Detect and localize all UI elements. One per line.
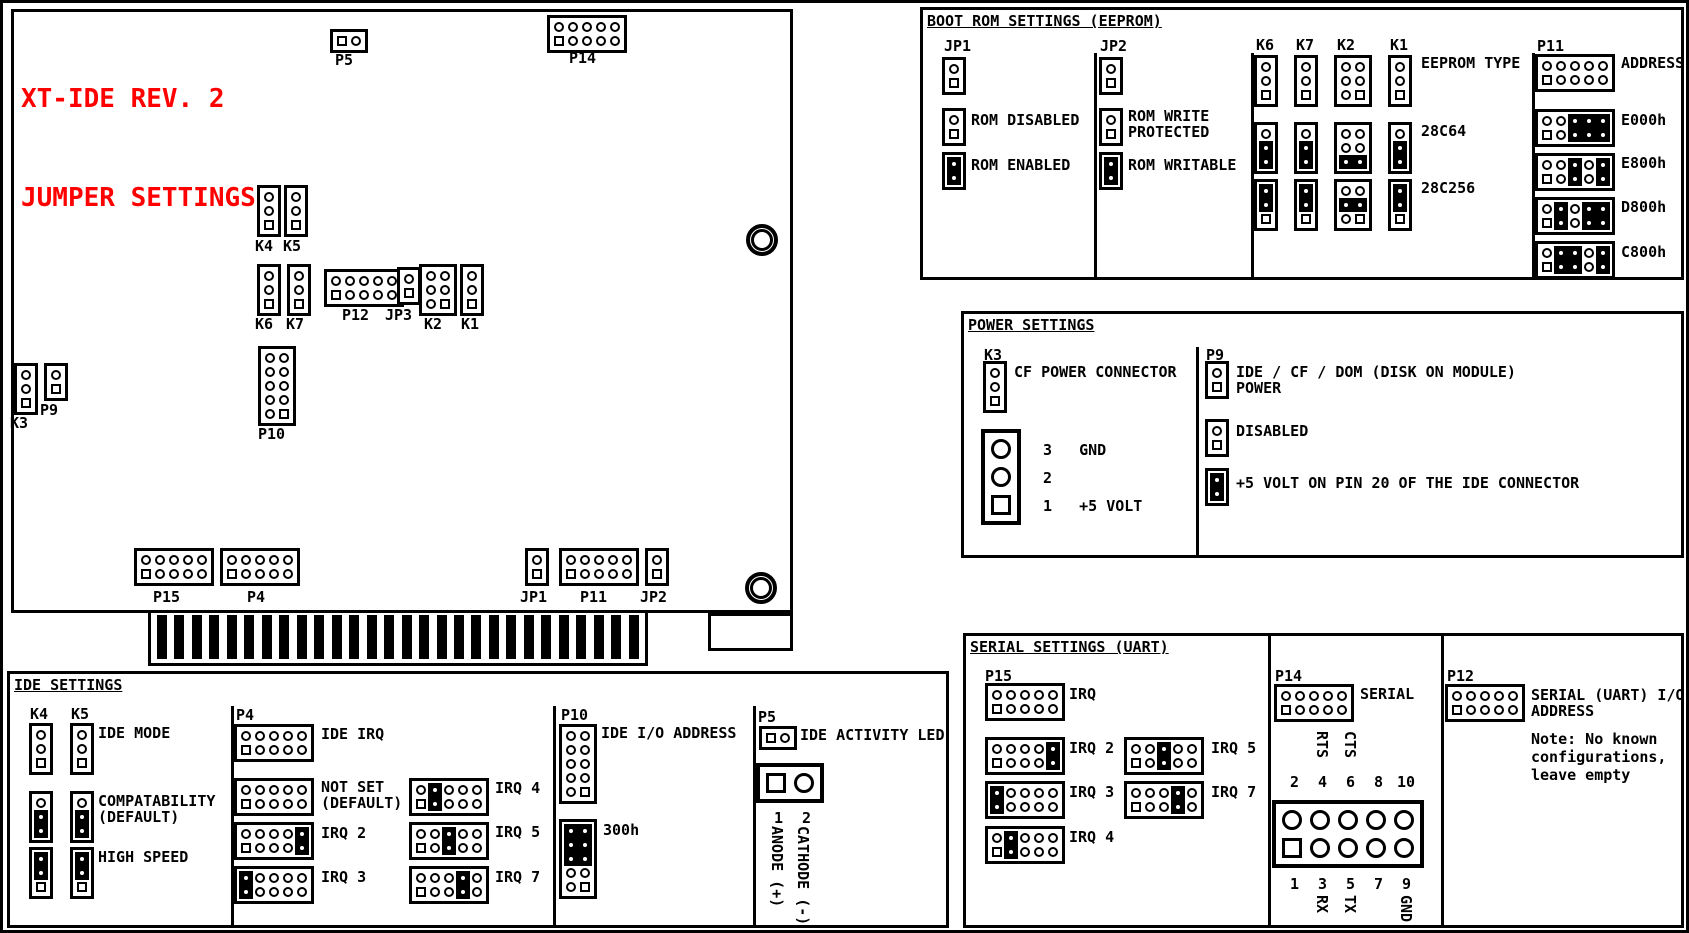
pin-dot	[433, 788, 437, 792]
label-pin2: 2	[1043, 471, 1052, 485]
pin-dot	[1304, 160, 1308, 164]
pin-round	[1034, 788, 1044, 798]
label-pin2: 2	[1290, 775, 1299, 789]
label-note-1: Note: No known	[1531, 732, 1657, 746]
pin-round	[1006, 802, 1016, 812]
hdr-p15-irq7	[1124, 781, 1204, 819]
pin-round	[430, 829, 440, 839]
pin-dot	[461, 890, 465, 894]
pin-dot	[1215, 492, 1219, 496]
pin-round	[554, 22, 564, 32]
pin-round	[458, 785, 468, 795]
pin-round	[440, 271, 450, 281]
pin-round	[622, 569, 632, 579]
pin-dot	[1559, 207, 1563, 211]
pin-round	[416, 785, 426, 795]
pin-1-square	[227, 569, 237, 579]
pin-round	[1355, 186, 1365, 196]
label-k5: K5	[71, 707, 89, 721]
hdr-k1-pins	[1388, 55, 1412, 107]
pin-1-square	[1542, 174, 1552, 184]
pin-round	[1542, 116, 1552, 126]
pin-dot	[1162, 761, 1166, 765]
mounting-hole	[745, 572, 777, 604]
pin-round	[155, 555, 165, 565]
hdr-jp1	[525, 548, 549, 586]
pin-1-square	[992, 847, 1002, 857]
label-ide-io-address: IDE I/O ADDRESS	[601, 726, 736, 740]
pin-dot	[1051, 747, 1055, 751]
label-p14: P14	[569, 51, 596, 65]
pin-1-square	[766, 733, 776, 743]
pin-round	[255, 569, 265, 579]
label-pin4: 4	[1318, 775, 1327, 789]
pin-dot	[569, 857, 573, 861]
pin-1-square	[1212, 382, 1222, 392]
pin-dot	[1304, 203, 1308, 207]
pin-1-square	[1542, 262, 1552, 272]
label-ide-cf-dom: IDE / CF / DOM (DISK ON MODULE)	[1236, 365, 1516, 379]
hdr-p9-pins	[1205, 361, 1229, 399]
pin-round	[1295, 705, 1305, 715]
pin-dot	[447, 846, 451, 850]
pin-dot	[1587, 207, 1591, 211]
label-p11: P11	[1537, 39, 1564, 53]
pin-round	[269, 799, 279, 809]
pin-round	[279, 367, 289, 377]
pin-round	[1570, 75, 1580, 85]
pin-round	[1301, 129, 1311, 139]
pin-dot	[1398, 189, 1402, 193]
hdr-p4-irq5	[409, 822, 489, 860]
pin-round	[1261, 76, 1271, 86]
pin-round	[241, 731, 251, 741]
hdr-p4-irq3	[234, 866, 314, 904]
pin-round	[1020, 788, 1030, 798]
pin-round	[580, 569, 590, 579]
pin-round	[566, 745, 576, 755]
pin-round	[1020, 744, 1030, 754]
pin-round	[283, 887, 293, 897]
label-k1: K1	[1390, 38, 1408, 52]
pin-round	[1508, 705, 1518, 715]
pin-round	[283, 569, 293, 579]
label-cf-power-connector: CF POWER CONNECTOR	[1014, 365, 1177, 379]
hdr-k6	[257, 264, 281, 316]
pin-round	[1301, 76, 1311, 86]
pin-round	[1323, 705, 1333, 715]
pin-1-square	[331, 290, 341, 300]
pin-round	[1048, 704, 1058, 714]
hdr-p10	[258, 346, 296, 426]
label-disabled: DISABLED	[1236, 424, 1308, 438]
pin-dot	[244, 890, 248, 894]
pin-round	[472, 843, 482, 853]
pin-round	[1187, 788, 1197, 798]
pin-round	[404, 274, 414, 284]
label-anode: ANODE (+)	[770, 826, 784, 907]
label-p4: P4	[247, 590, 265, 604]
pin-round	[610, 36, 620, 46]
pin-round	[1034, 744, 1044, 754]
pin-round	[1309, 705, 1319, 715]
pin-round	[1355, 143, 1365, 153]
pin-round	[1556, 130, 1566, 140]
hdr-p11-e800h	[1535, 153, 1615, 191]
pin-dot	[1264, 160, 1268, 164]
pin-round	[36, 730, 46, 740]
hdr-serial-connector	[1272, 800, 1424, 868]
pin-1-square	[77, 758, 87, 768]
label-k2: K2	[424, 317, 442, 331]
pin-round	[297, 887, 307, 897]
pin-round	[990, 368, 1000, 378]
label-jp2: JP2	[1100, 39, 1127, 53]
pin-round	[1310, 838, 1330, 858]
pin-1-square	[1301, 90, 1311, 100]
pin-round	[283, 873, 293, 883]
pin-round	[472, 829, 482, 839]
pin-dot	[1601, 163, 1605, 167]
hdr-k1-28c64	[1388, 122, 1412, 174]
pin-round	[283, 555, 293, 565]
pin-round	[1366, 810, 1386, 830]
label-cathode: CATHODE (-)	[796, 826, 810, 925]
hdr-k7	[287, 264, 311, 316]
pin-round	[1295, 691, 1305, 701]
pin-round	[472, 799, 482, 809]
label-28c256: 28C256	[1421, 181, 1475, 195]
pin-round	[227, 555, 237, 565]
pin-dot	[1344, 203, 1348, 207]
pin-round	[1131, 744, 1141, 754]
pin-1-square	[416, 843, 426, 853]
label-rom-writable: ROM WRITABLE	[1128, 158, 1236, 172]
label-p10: P10	[561, 708, 588, 722]
pin-round	[1006, 690, 1016, 700]
pin-dot	[1051, 761, 1055, 765]
pin-dot	[1587, 133, 1591, 137]
pin-1-square	[1542, 218, 1552, 228]
hdr-k2-28c64	[1334, 122, 1372, 174]
label-k4: K4	[30, 707, 48, 721]
pin-round	[264, 285, 274, 295]
pin-round	[1106, 64, 1116, 74]
hdr-p4-irq7	[409, 866, 489, 904]
pin-round	[269, 745, 279, 755]
pin-round	[1006, 704, 1016, 714]
hdr-p10-300h	[559, 819, 597, 899]
label-e800h: E800h	[1621, 156, 1666, 170]
hdr-k2-pins	[1334, 55, 1372, 107]
pin-dot	[1264, 189, 1268, 193]
pin-dot	[80, 829, 84, 833]
pin-round	[1598, 61, 1608, 71]
pin-round	[991, 467, 1011, 487]
pin-round	[269, 829, 279, 839]
label-p15-irq2: IRQ 2	[1069, 741, 1114, 755]
pin-1-square	[990, 396, 1000, 406]
pin-round	[1020, 833, 1030, 843]
pin-dot	[80, 871, 84, 875]
pin-round	[387, 290, 397, 300]
label-p4-irq7: IRQ 7	[495, 870, 540, 884]
label-p12: P12	[342, 308, 369, 322]
pin-round	[1034, 802, 1044, 812]
pin-round	[1034, 758, 1044, 768]
hdr-p15-irq3	[985, 781, 1065, 819]
pin-dot	[1109, 176, 1113, 180]
pin-dot	[1587, 119, 1591, 123]
pin-round	[255, 731, 265, 741]
pin-1-square	[992, 704, 1002, 714]
pin-round	[279, 353, 289, 363]
pin-round	[265, 409, 275, 419]
pin-round	[1355, 76, 1365, 86]
pin-round	[426, 285, 436, 295]
label-c800h: C800h	[1621, 245, 1666, 259]
pin-dot	[1601, 265, 1605, 269]
pin-dot	[39, 871, 43, 875]
pin-round	[345, 276, 355, 286]
pin-1-square	[51, 384, 61, 394]
pin-round	[1480, 705, 1490, 715]
pin-dot	[1398, 146, 1402, 150]
hdr-jp2-rom-write-protected	[1099, 108, 1123, 146]
pin-round	[992, 833, 1002, 843]
pin-dot	[1573, 163, 1577, 167]
pin-dot	[1398, 203, 1402, 207]
label-p15-irq3: IRQ 3	[1069, 785, 1114, 799]
label-k5: K5	[283, 239, 301, 253]
pin-round	[1466, 705, 1476, 715]
pin-dot	[461, 876, 465, 880]
hdr-jp3	[397, 267, 421, 305]
pin-round	[294, 285, 304, 295]
pin-round	[255, 829, 265, 839]
pin-round	[1452, 691, 1462, 701]
pin-1-square	[949, 78, 959, 88]
pin-round	[1584, 174, 1594, 184]
hdr-k5	[284, 185, 308, 237]
label-p5: P5	[758, 710, 776, 724]
pin-round	[283, 843, 293, 853]
pin-dot	[1601, 207, 1605, 211]
pin-round	[610, 22, 620, 32]
pin-round	[283, 731, 293, 741]
label-rx: RX	[1315, 895, 1329, 913]
pin-round	[1145, 802, 1155, 812]
pin-round	[269, 843, 279, 853]
pin-round	[472, 873, 482, 883]
pin-round	[594, 569, 604, 579]
label-5v-pin20: +5 VOLT ON PIN 20 OF THE IDE CONNECTOR	[1236, 476, 1579, 490]
pin-dot	[583, 857, 587, 861]
hdr-p11-d800h	[1535, 197, 1615, 235]
pin-round	[197, 555, 207, 565]
pin-dot	[300, 846, 304, 850]
hdr-p10-pins	[559, 724, 597, 804]
mounting-hole	[746, 224, 778, 256]
pin-dot	[1215, 478, 1219, 482]
pin-round	[1341, 62, 1351, 72]
pin-round	[1341, 76, 1351, 86]
pin-round	[1187, 744, 1197, 754]
hdr-p15-irq2	[985, 737, 1065, 775]
pin-round	[1556, 174, 1566, 184]
pin-round	[1584, 248, 1594, 258]
pin-dot	[39, 829, 43, 833]
pin-1-square	[467, 299, 477, 309]
pin-1-square	[416, 799, 426, 809]
label-k6: K6	[255, 317, 273, 331]
pin-dot	[1587, 221, 1591, 225]
pin-round	[1570, 218, 1580, 228]
label-not-set: NOT SET	[321, 780, 384, 794]
pin-round	[1145, 758, 1155, 768]
label-compat-default: (DEFAULT)	[98, 810, 179, 824]
diagram-canvas: XT-IDE REV. 2 JUMPER SETTINGS BOOT ROM S…	[0, 0, 1689, 933]
hdr-led-connector	[756, 763, 824, 803]
hdr-p15-irq5	[1124, 737, 1204, 775]
pin-round	[1020, 690, 1030, 700]
pin-dot	[244, 876, 248, 880]
pin-round	[1494, 705, 1504, 715]
pin-round	[1173, 744, 1183, 754]
pin-1-square	[652, 569, 662, 579]
pin-round	[183, 569, 193, 579]
pin-1-square	[77, 882, 87, 892]
pin-round	[582, 36, 592, 46]
pin-round	[1508, 691, 1518, 701]
label-p10: P10	[258, 427, 285, 441]
label-led-pin1: 1	[774, 811, 783, 825]
pin-round	[1556, 61, 1566, 71]
hdr-k3-pins	[983, 361, 1007, 413]
pin-1-square	[440, 299, 450, 309]
pin-dot	[1601, 177, 1605, 181]
label-note-3: leave empty	[1531, 768, 1630, 782]
pin-dot	[1009, 836, 1013, 840]
pin-round	[566, 868, 576, 878]
pin-round	[1395, 129, 1405, 139]
label-pin1: 1	[1290, 877, 1299, 891]
label-rom-disabled: ROM DISABLED	[971, 113, 1079, 127]
pin-round	[264, 271, 274, 281]
pin-1-square	[241, 799, 251, 809]
pin-1-square	[1301, 214, 1311, 224]
pin-round	[387, 276, 397, 286]
pin-dot	[583, 829, 587, 833]
label-serial-uart-io: SERIAL (UART) I/O	[1531, 688, 1685, 702]
pin-dot	[995, 791, 999, 795]
pin-round	[291, 192, 301, 202]
pin-round	[1355, 62, 1365, 72]
pin-dot	[995, 805, 999, 809]
hdr-k6-28c64	[1254, 122, 1278, 174]
section-divider	[1441, 636, 1444, 925]
label-pin3-gnd: 3 GND	[1043, 443, 1106, 457]
pin-1-square	[580, 882, 590, 892]
pin-round	[331, 276, 341, 286]
pin-round	[1323, 691, 1333, 701]
pin-round	[1341, 143, 1351, 153]
pin-round	[291, 206, 301, 216]
hdr-k5-compatability	[70, 791, 94, 843]
pin-1-square	[580, 787, 590, 797]
pin-round	[1106, 115, 1116, 125]
pin-dot	[1559, 251, 1563, 255]
pin-round	[1337, 705, 1347, 715]
hdr-k6-28c256	[1254, 179, 1278, 231]
hdr-k3	[14, 363, 38, 415]
pin-round	[255, 555, 265, 565]
pin-round	[1020, 847, 1030, 857]
pin-round	[264, 192, 274, 202]
pin-round	[359, 290, 369, 300]
pin-1-square	[21, 398, 31, 408]
pin-round	[794, 773, 814, 793]
pin-round	[622, 555, 632, 565]
pin-1-square	[1542, 130, 1552, 140]
pin-round	[1212, 368, 1222, 378]
pin-round	[197, 569, 207, 579]
pin-1-square	[1106, 129, 1116, 139]
pin-round	[1034, 847, 1044, 857]
label-p9: P9	[1206, 348, 1224, 362]
hdr-k4-ide-mode	[29, 723, 53, 775]
pin-round	[255, 873, 265, 883]
pin-dot	[39, 857, 43, 861]
hdr-p5-pins	[759, 726, 797, 750]
label-k7: K7	[286, 317, 304, 331]
pin-dot	[569, 829, 573, 833]
pin-dot	[300, 832, 304, 836]
pin-dot	[1304, 189, 1308, 193]
pin-1-square	[36, 882, 46, 892]
label-not-set-default: (DEFAULT)	[321, 796, 402, 810]
pin-round	[596, 36, 606, 46]
label-rom-write: ROM WRITE	[1128, 109, 1209, 123]
pin-round	[351, 36, 361, 46]
pin-dot	[1573, 133, 1577, 137]
label-gnd: GND	[1399, 895, 1413, 922]
label-28c64: 28C64	[1421, 124, 1466, 138]
pin-round	[444, 785, 454, 795]
pin-round	[1556, 75, 1566, 85]
hdr-p15	[134, 548, 214, 586]
pin-1-square	[1131, 758, 1141, 768]
label-pin10: 10	[1397, 775, 1415, 789]
pin-round	[608, 569, 618, 579]
diagram-overlay: P5P14K4K5K6K7P12JP3K2K1K3P9P10P15P4JP1P1…	[3, 3, 1686, 930]
pin-round	[416, 873, 426, 883]
section-divider	[553, 706, 556, 925]
pin-round	[241, 569, 251, 579]
pin-round	[992, 690, 1002, 700]
pin-dot	[1344, 160, 1348, 164]
pin-1-square	[291, 220, 301, 230]
section-divider	[753, 706, 756, 925]
pin-round	[949, 64, 959, 74]
hdr-k6-pins	[1254, 55, 1278, 107]
hdr-p9	[44, 363, 68, 401]
pin-round	[297, 873, 307, 883]
pin-round	[991, 439, 1011, 459]
hdr-p4-pins	[234, 724, 314, 762]
label-pin1-5v: 1 +5 VOLT	[1043, 499, 1142, 513]
hdr-k5-ide-mode	[70, 723, 94, 775]
